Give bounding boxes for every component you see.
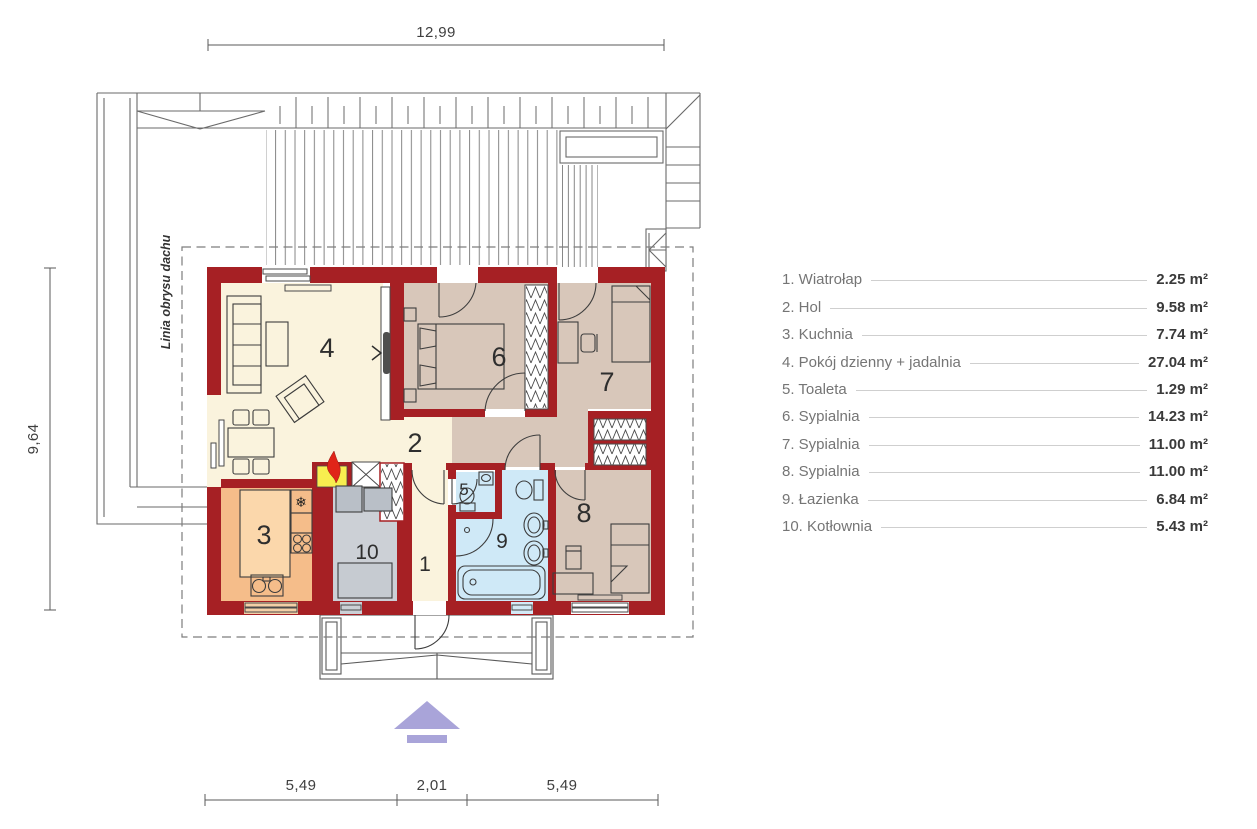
legend-room-name: 9. Łazienka: [782, 491, 859, 508]
dim-bottom-label-3: 5,49: [547, 777, 578, 794]
entrance-porch: [320, 615, 553, 679]
side-terrace: [97, 93, 207, 524]
legend-room-name: 7. Sypialnia: [782, 436, 860, 453]
skylight: [560, 131, 663, 163]
dimension-left: [44, 268, 56, 610]
floor-passage: [381, 420, 400, 463]
legend-room-area: 1.29 m²: [1156, 381, 1208, 398]
legend-leader-line: [869, 445, 1140, 446]
room-number-vestibule: 1: [419, 553, 431, 576]
dim-top-label: 12,99: [416, 24, 456, 41]
legend-row: 1. Wiatrołap 2.25 m²: [782, 266, 1208, 293]
roof-valley: [137, 93, 265, 129]
dim-bottom-label-2: 2,01: [417, 777, 448, 794]
legend-room-name: 1. Wiatrołap: [782, 271, 862, 288]
legend-leader-line: [881, 527, 1147, 528]
legend-row: 8. Sypialnia 11.00 m²: [782, 458, 1208, 485]
room-number-bedroom6: 6: [491, 342, 506, 372]
legend-room-name: 5. Toaleta: [782, 381, 847, 398]
room-number-living: 4: [319, 333, 334, 363]
legend-room-name: 10. Kotłownia: [782, 518, 872, 535]
pocket-door-leaf: [383, 332, 390, 374]
legend-row: 6. Sypialnia 14.23 m²: [782, 403, 1208, 430]
legend-room-name: 3. Kuchnia: [782, 326, 853, 343]
radiator: [285, 285, 331, 291]
floor-living-room: [221, 283, 383, 479]
room-number-kitchen: 3: [256, 520, 271, 550]
legend-room-area: 14.23 m²: [1148, 408, 1208, 425]
legend-room-area: 27.04 m²: [1148, 354, 1208, 371]
window-bathroom-bottom: [511, 602, 533, 614]
roof-outline-label: Linia obrysu dachu: [159, 234, 173, 349]
room-number-hall: 2: [407, 428, 422, 458]
legend-leader-line: [862, 335, 1147, 336]
dimension-bottom: [205, 794, 658, 806]
legend-row: 2. Hol 9.58 m²: [782, 293, 1208, 320]
legend-room-area: 11.00 m²: [1149, 463, 1208, 480]
legend-row: 5. Toaleta 1.29 m²: [782, 376, 1208, 403]
room-number-boiler: 10: [355, 541, 378, 564]
legend-room-area: 2.25 m²: [1156, 271, 1208, 288]
room-number-bedroom8: 8: [576, 498, 591, 528]
bedroom6-wardrobe: [525, 285, 548, 409]
legend-row: 4. Pokój dzienny + jadalnia 27.04 m²: [782, 348, 1208, 375]
room-legend: 1. Wiatrołap 2.25 m² 2. Hol 9.58 m² 3. K…: [782, 266, 1208, 540]
floor-vestibule: [412, 470, 448, 601]
roof-right-eave: [666, 93, 700, 267]
legend-leader-line: [869, 417, 1139, 418]
floor-corridor: [452, 417, 588, 467]
legend-row: 3. Kuchnia 7.74 m²: [782, 321, 1208, 348]
door-opening-bedroom-7: [557, 267, 598, 283]
legend-leader-line: [869, 472, 1140, 473]
door-opening-bedroom-6: [437, 267, 478, 283]
room-number-bedroom7: 7: [599, 367, 614, 397]
legend-room-area: 7.74 m²: [1156, 326, 1208, 343]
legend-room-area: 9.58 m²: [1156, 299, 1208, 316]
legend-leader-line: [868, 500, 1148, 501]
roof-hatching: [266, 97, 658, 267]
legend-row: 7. Sypialnia 11.00 m²: [782, 431, 1208, 458]
floor-plan-page: Linia obrysu dachu: [0, 0, 1257, 829]
legend-room-name: 6. Sypialnia: [782, 408, 860, 425]
window-boiler-bottom: [340, 602, 362, 614]
snowflake-icon: ❄: [295, 495, 307, 511]
legend-leader-line: [830, 308, 1147, 309]
legend-room-area: 5.43 m²: [1156, 518, 1208, 535]
legend-leader-line: [970, 363, 1139, 364]
legend-row: 10. Kotłownia 5.43 m²: [782, 513, 1208, 540]
legend-room-name: 4. Pokój dzienny + jadalnia: [782, 354, 961, 371]
floor-bedroom-8: [556, 470, 651, 601]
room-number-bathroom: 9: [496, 530, 508, 553]
window-bedroom8-bottom: [571, 595, 629, 614]
room-number-toilet: 5: [459, 480, 468, 499]
entrance-arrow-icon: [394, 701, 460, 743]
legend-leader-line: [871, 280, 1147, 281]
entrance-door-opening: [413, 601, 446, 615]
legend-row: 9. Łazienka 6.84 m²: [782, 486, 1208, 513]
legend-room-name: 8. Sypialnia: [782, 463, 860, 480]
window-kitchen-bottom: [244, 602, 298, 614]
chimney: [646, 229, 666, 271]
floor-bathroom: [502, 470, 548, 519]
legend-room-area: 6.84 m²: [1156, 491, 1208, 508]
chimney-shaft-box: [352, 462, 380, 487]
legend-room-area: 11.00 m²: [1149, 436, 1208, 453]
legend-room-name: 2. Hol: [782, 299, 821, 316]
radiator: [578, 595, 622, 600]
dim-bottom-label-1: 5,49: [286, 777, 317, 794]
dim-left-label: 9,64: [25, 424, 42, 455]
legend-leader-line: [856, 390, 1148, 391]
